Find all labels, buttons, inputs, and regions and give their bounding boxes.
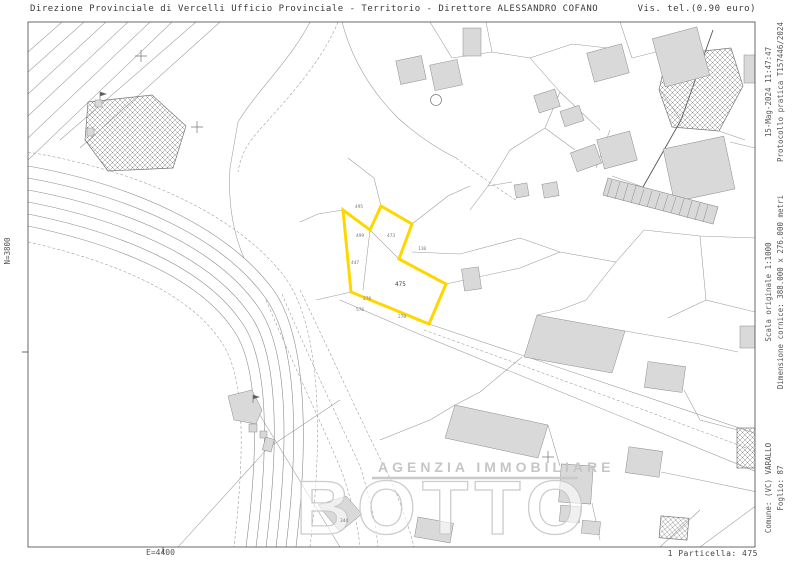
scale-annotation: Scala originale 1:1000 Dimensione cornic…	[763, 187, 787, 397]
parcel-label: 499	[356, 233, 364, 239]
hatched-block-bottom	[659, 516, 689, 540]
building	[445, 405, 548, 458]
protocol-number: Protocollo pratica T157446/2024	[775, 17, 787, 167]
building	[560, 105, 584, 126]
watermark: AGENZIA IMMOBILIARE BOTTO	[296, 459, 614, 551]
grid-cross-icon	[135, 50, 147, 62]
building	[228, 390, 262, 424]
building	[524, 315, 625, 373]
building	[597, 131, 638, 169]
building	[740, 326, 762, 348]
protocol-date: 15-Mag-2024 11:47:47	[763, 17, 775, 167]
particella-footer: 1 Particella: 475	[668, 549, 758, 558]
building	[396, 56, 426, 85]
cadastral-map-page: Direzione Provinciale di Vercelli Uffici…	[0, 0, 800, 566]
building	[534, 89, 560, 113]
east-coordinate: E=4400	[146, 548, 175, 557]
building	[587, 44, 630, 82]
building	[462, 267, 482, 291]
scale-original: Scala originale 1:1000	[763, 187, 775, 397]
comune-annotation: Comune: (VC) VARALLO Foglio: 87	[763, 413, 787, 563]
building	[542, 182, 559, 198]
parcel-label: 344	[340, 518, 348, 524]
parcel-label: 270	[398, 314, 406, 320]
north-coordinate: N=3800	[2, 229, 14, 273]
parcel-label: 447	[351, 260, 359, 266]
parcel-label: 576	[356, 307, 364, 313]
watermark-agency-name: BOTTO	[296, 466, 591, 551]
building	[463, 28, 481, 56]
building	[514, 183, 529, 198]
building	[87, 128, 94, 136]
parcel-label: 473	[387, 233, 395, 239]
frame-dimensions: Dimensione cornice: 388.000 x 276.000 me…	[775, 187, 787, 397]
protocol-annotation: 15-Mag-2024 11:47:47 Protocollo pratica …	[763, 17, 787, 167]
roundabout-circle	[431, 95, 442, 106]
map-canvas[interactable]: AGENZIA IMMOBILIARE BOTTO 475 495 499 47…	[0, 0, 800, 566]
building	[95, 100, 102, 107]
parcel-label: 110	[418, 246, 426, 252]
building	[570, 144, 601, 172]
building	[644, 361, 685, 392]
railway-lines	[28, 166, 303, 547]
parcel-label: 278	[363, 296, 371, 302]
building	[625, 447, 662, 477]
building	[430, 59, 463, 90]
foglio-number: Foglio: 87	[775, 413, 787, 563]
survey-flag-icon	[100, 92, 106, 100]
building	[260, 431, 267, 438]
comune-name: Comune: (VC) VARALLO	[763, 413, 775, 563]
building	[249, 424, 257, 432]
building	[744, 55, 755, 83]
building	[663, 136, 735, 202]
parcel-label: 495	[355, 204, 363, 210]
grid-cross-icon	[191, 121, 203, 133]
hatched-block-rightedge	[737, 428, 763, 468]
parcel-label-475: 475	[395, 281, 406, 288]
